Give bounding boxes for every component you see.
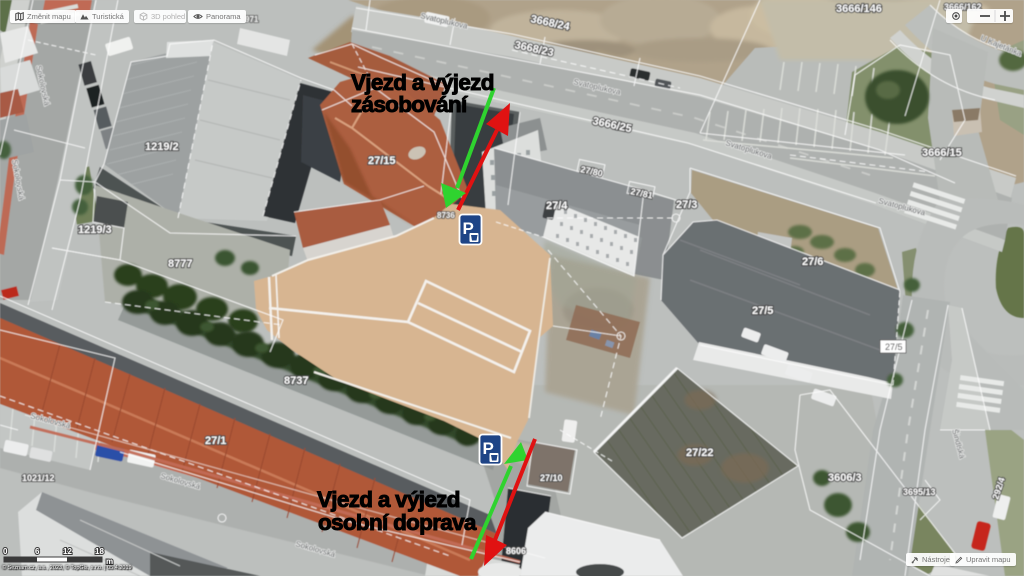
svg-text:27/4: 27/4: [546, 200, 568, 212]
svg-text:27/5: 27/5: [752, 305, 773, 317]
svg-text:3695/13: 3695/13: [903, 487, 936, 497]
svg-text:18: 18: [95, 547, 104, 556]
svg-text:27/22: 27/22: [686, 447, 714, 459]
svg-text:27/3: 27/3: [676, 199, 697, 211]
svg-text:0: 0: [3, 547, 8, 556]
svg-text:8737: 8737: [284, 375, 308, 387]
svg-text:1021/12: 1021/12: [22, 473, 55, 483]
svg-text:12: 12: [63, 547, 72, 556]
svg-text:3606/3: 3606/3: [828, 472, 862, 484]
svg-text:8606: 8606: [506, 546, 526, 556]
svg-text:osobní doprava: osobní doprava: [318, 510, 477, 535]
svg-text:27/6: 27/6: [802, 256, 823, 268]
svg-text:27/1: 27/1: [205, 435, 226, 447]
svg-text:971: 971: [245, 15, 259, 24]
svg-text:27/15: 27/15: [368, 155, 396, 167]
svg-text:3666/15: 3666/15: [922, 147, 962, 159]
svg-text:Vjezd a výjezd: Vjezd a výjezd: [317, 487, 460, 512]
svg-text:zásobování: zásobování: [351, 92, 468, 117]
svg-text:8736: 8736: [437, 211, 455, 220]
svg-text:1219/3: 1219/3: [78, 224, 112, 236]
svg-text:27/10: 27/10: [540, 473, 563, 483]
svg-text:3666/146: 3666/146: [836, 3, 882, 15]
svg-text:1219/2: 1219/2: [145, 141, 179, 153]
svg-text:27/5: 27/5: [885, 342, 903, 352]
svg-text:8777: 8777: [168, 258, 192, 270]
svg-text:6: 6: [35, 547, 40, 556]
